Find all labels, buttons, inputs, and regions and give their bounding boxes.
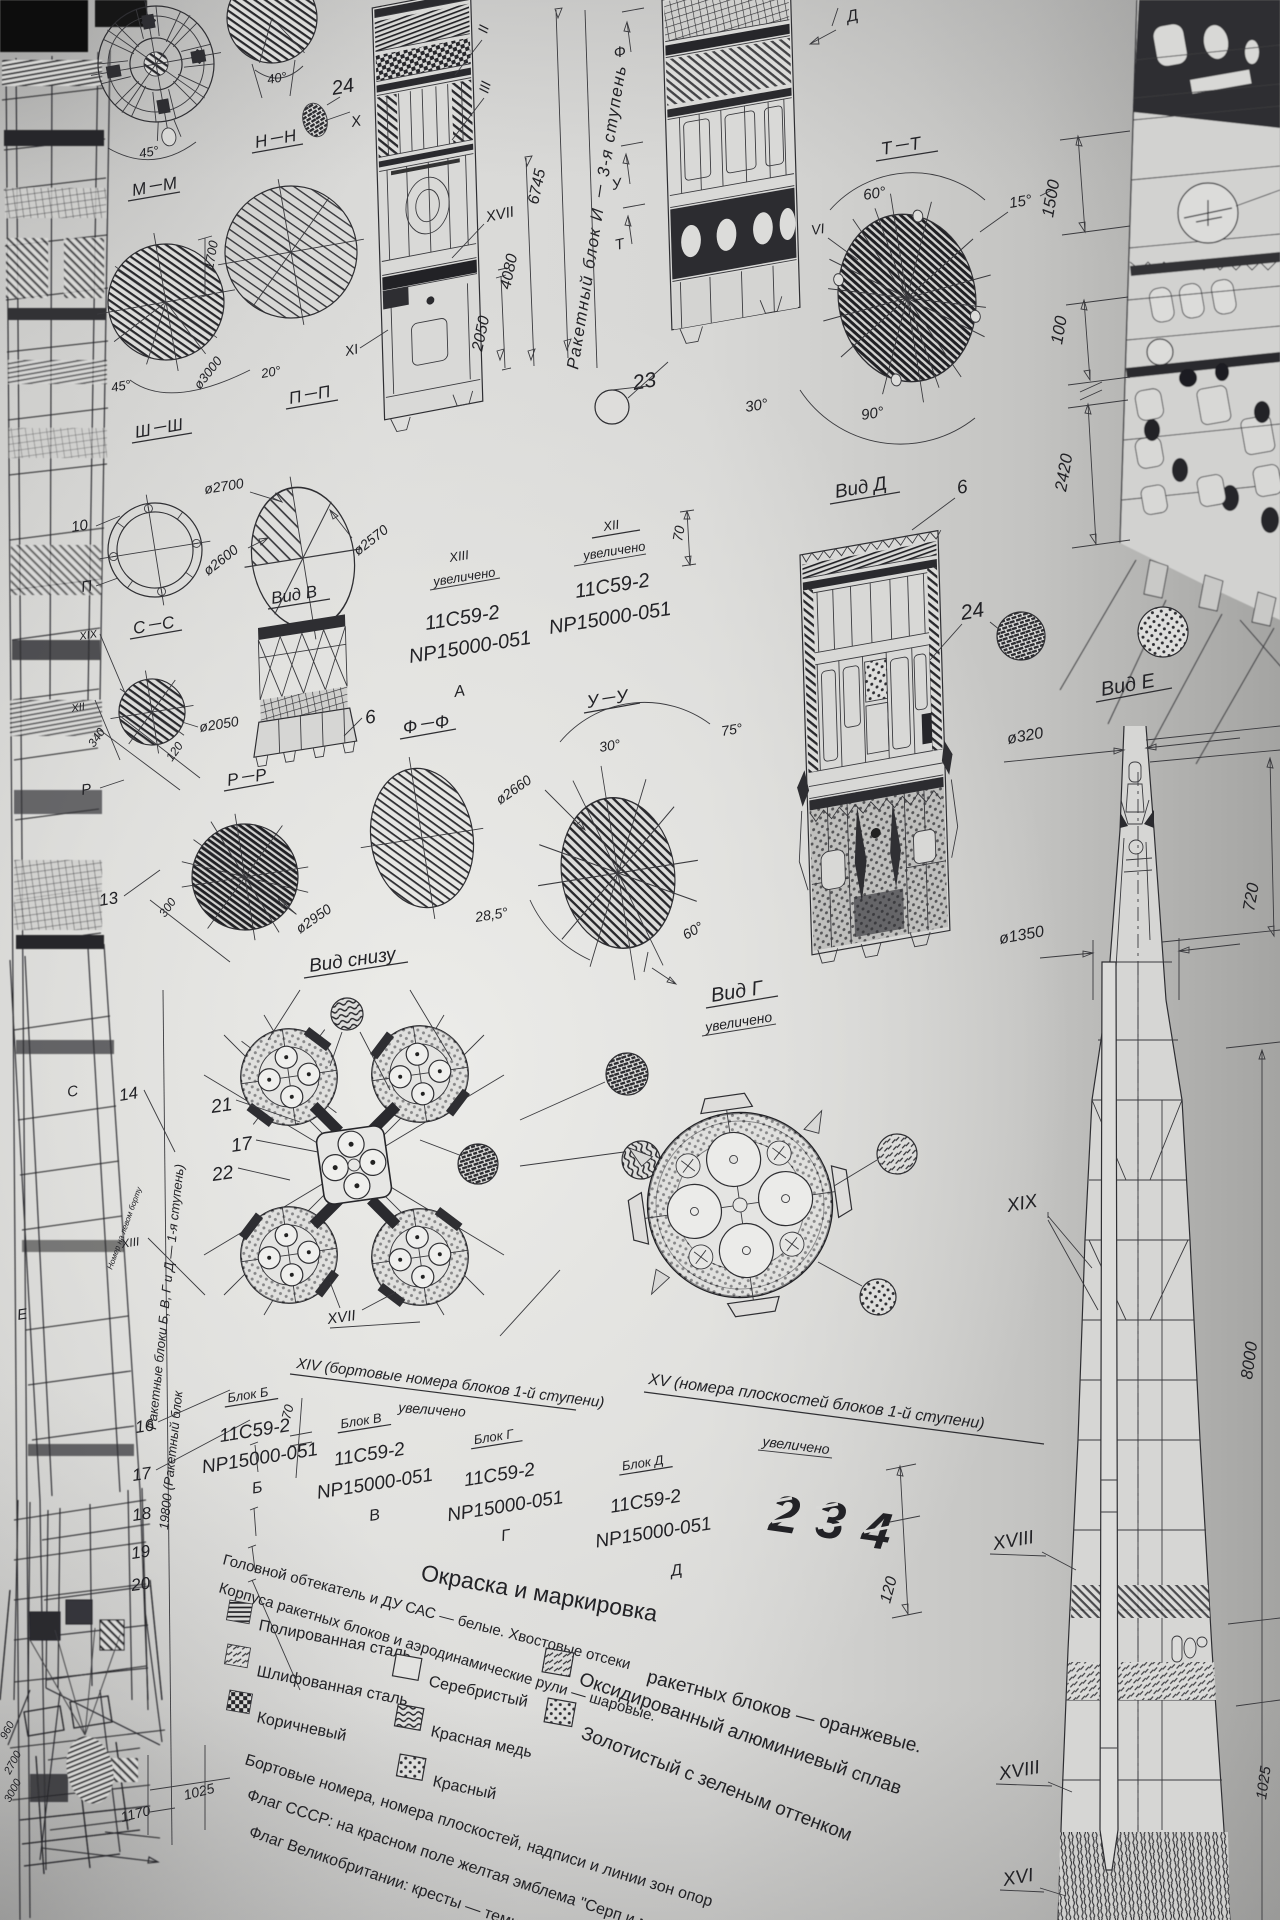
svg-text:90°: 90°: [860, 404, 885, 424]
svg-text:30°: 30°: [598, 736, 622, 755]
svg-text:22: 22: [210, 1162, 235, 1186]
svg-text:20: 20: [129, 1573, 152, 1595]
svg-text:24: 24: [329, 74, 356, 100]
svg-text:XII: XII: [70, 701, 86, 715]
svg-text:13: 13: [98, 888, 120, 910]
svg-text:10: 10: [70, 516, 90, 536]
svg-text:15°: 15°: [1008, 192, 1033, 212]
svg-text:19: 19: [130, 1541, 152, 1563]
svg-text:70: 70: [669, 524, 687, 542]
svg-text:75°: 75°: [720, 720, 744, 739]
svg-text:XII: XII: [601, 517, 620, 535]
svg-text:21: 21: [209, 1094, 234, 1118]
svg-text:18: 18: [131, 1503, 153, 1525]
svg-text:VI: VI: [810, 220, 826, 238]
svg-text:14: 14: [118, 1083, 140, 1105]
svg-text:17: 17: [131, 1463, 153, 1485]
svg-text:60°: 60°: [862, 184, 887, 204]
svg-text:30°: 30°: [744, 396, 769, 416]
svg-text:24: 24: [958, 598, 986, 625]
svg-text:23: 23: [630, 368, 658, 395]
